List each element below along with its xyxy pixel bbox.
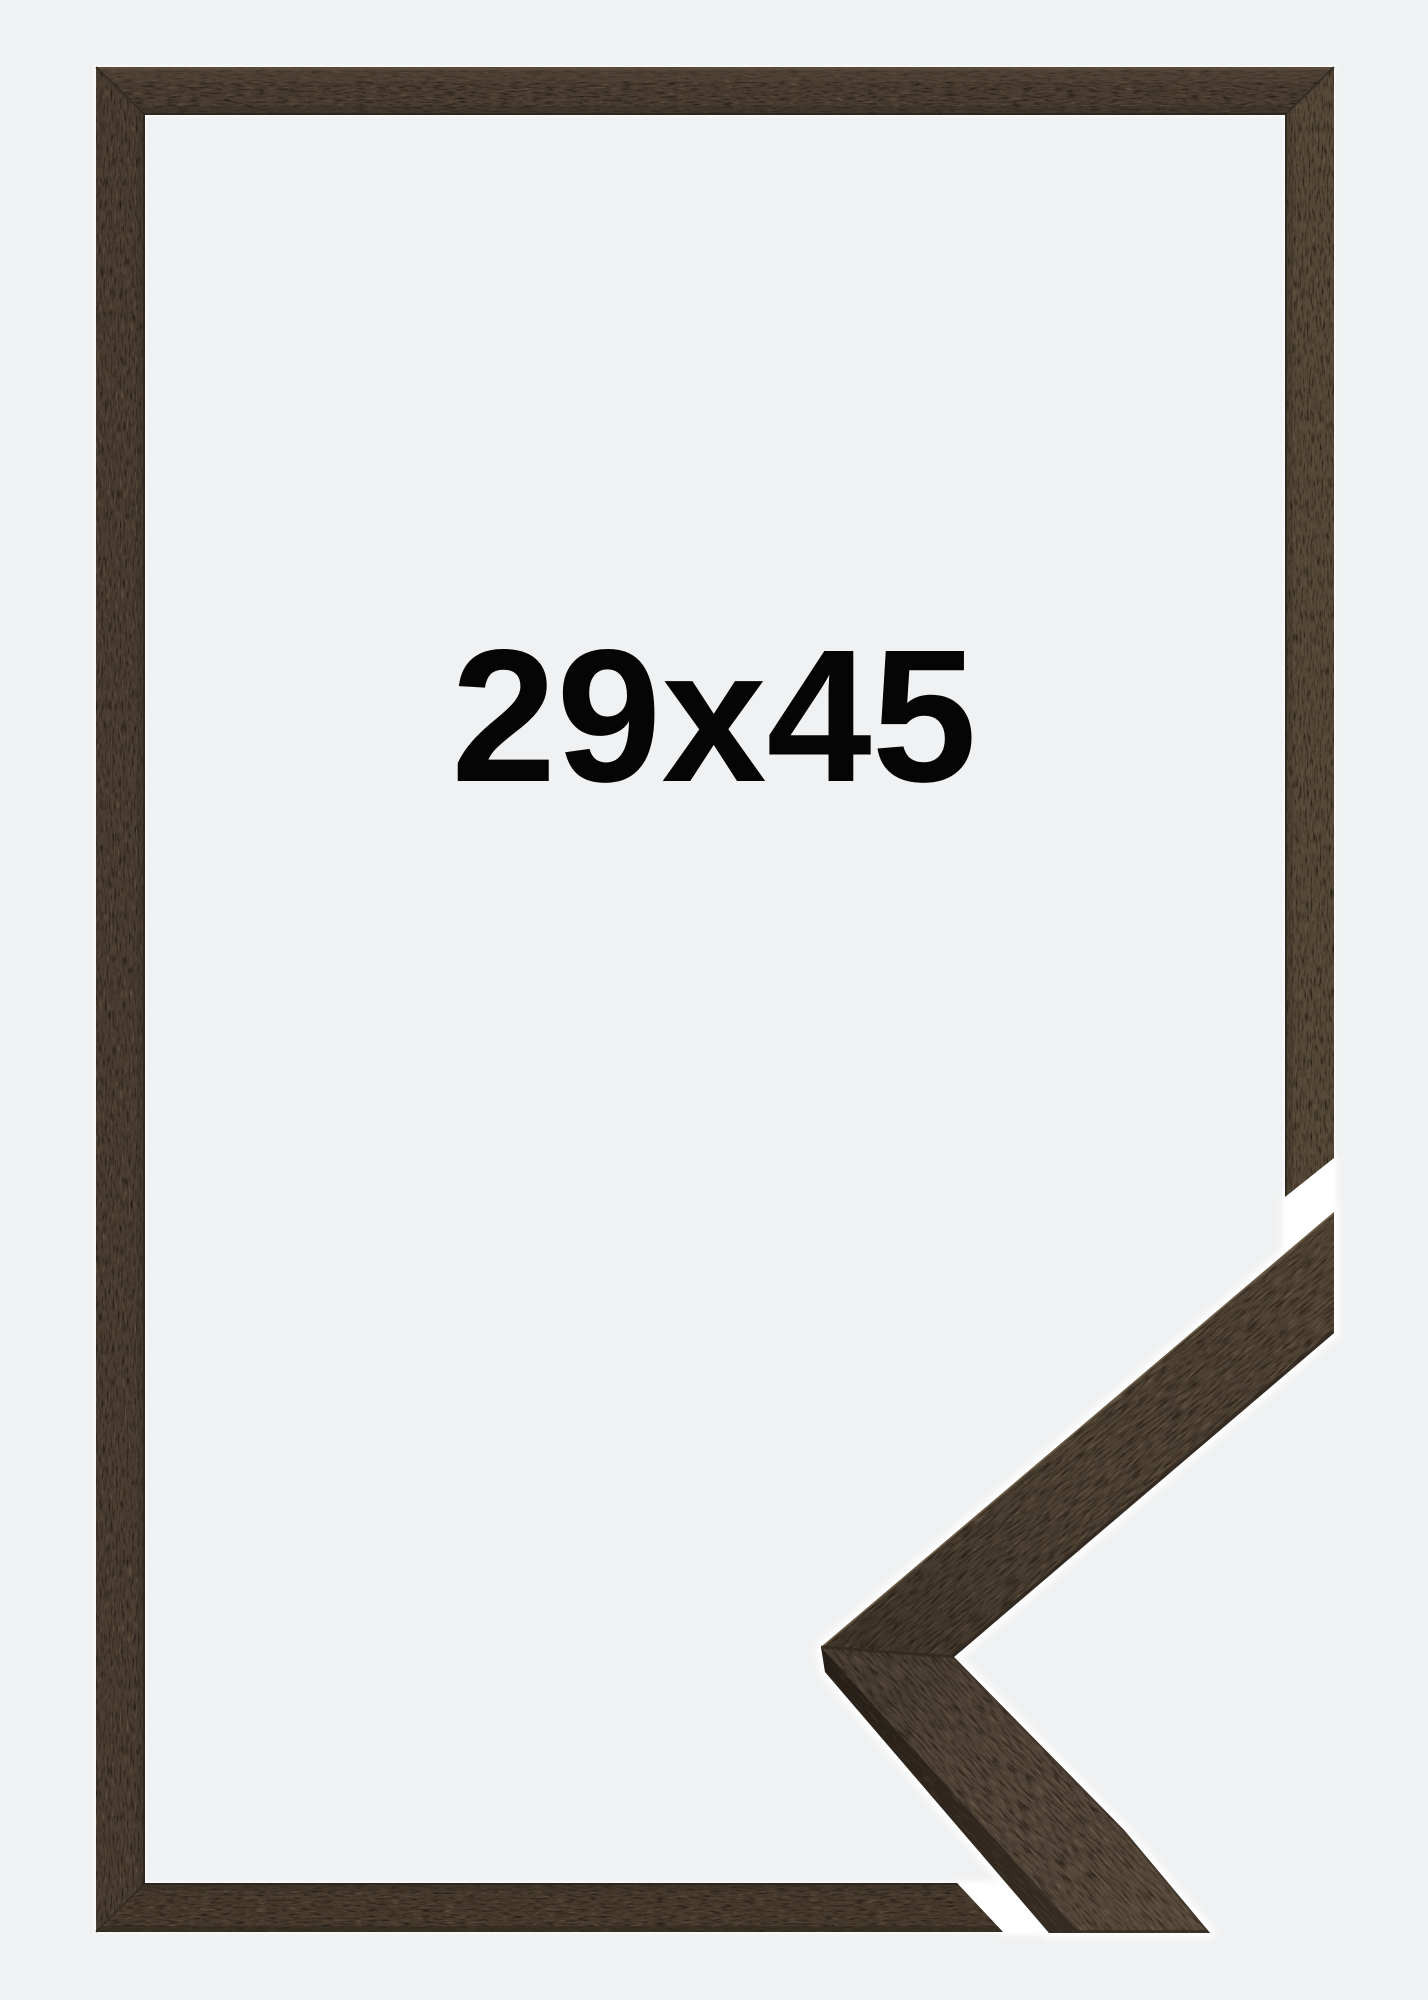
svg-text:29x45: 29x45 bbox=[451, 611, 977, 822]
